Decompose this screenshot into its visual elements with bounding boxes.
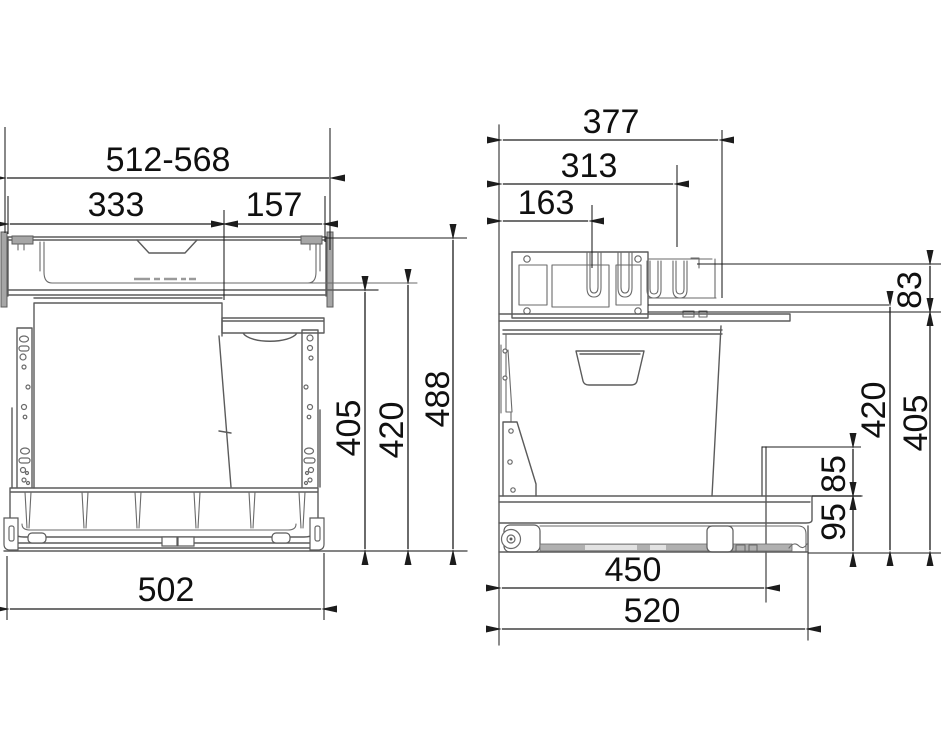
dim-side-rear-step-height: 85 <box>815 449 853 494</box>
front-structure <box>1 232 467 551</box>
right-mounting-rail <box>302 330 320 487</box>
left-mounting-rail <box>17 328 32 487</box>
dim-label-side-163: 163 <box>518 184 575 222</box>
dim-label-front-width-range: 512-568 <box>106 141 231 179</box>
right-mount-hook <box>301 236 322 244</box>
bin-grip-pocket <box>576 351 644 385</box>
dim-label-side-377: 377 <box>583 103 640 141</box>
dim-side-base-height: 95 <box>815 498 853 551</box>
large-bin <box>12 298 231 488</box>
side-view: 377 313 163 83 420 405 85 <box>499 103 941 645</box>
dim-front-bin-height: 405 <box>330 292 368 549</box>
bin-side <box>501 326 722 496</box>
dim-label-side-420: 420 <box>855 382 893 439</box>
dim-label-side-520: 520 <box>624 592 681 630</box>
left-mount-hook <box>12 236 33 244</box>
dim-side-rail-height: 83 <box>891 266 930 310</box>
dim-front-small-compartment: 157 <box>227 186 325 242</box>
slide-latch <box>162 537 177 546</box>
top-rail-bracket <box>512 252 716 318</box>
left-wall-panel <box>1 232 7 307</box>
dim-label-side-85: 85 <box>815 455 853 493</box>
side-base-platform <box>499 496 862 523</box>
dim-label-front-large-width: 333 <box>88 186 145 224</box>
compartment-dividers <box>25 492 305 528</box>
dim-label-side-405: 405 <box>897 395 935 452</box>
front-view: 512-568 333 157 405 420 488 502 <box>1 127 467 620</box>
dim-front-frame-height: 420 <box>373 285 411 549</box>
dim-label-front-420: 420 <box>373 402 411 459</box>
dim-label-front-base-width: 502 <box>138 571 195 609</box>
dim-front-total-height: 488 <box>326 238 467 549</box>
dim-label-front-405: 405 <box>330 400 368 457</box>
rear-step <box>762 447 766 602</box>
dim-side-bin-height: 405 <box>897 314 935 550</box>
handle-recess <box>137 240 197 253</box>
dim-side-slide-depth: 450 <box>502 551 764 589</box>
dim-label-side-313: 313 <box>561 147 618 185</box>
dim-label-front-small-width: 157 <box>246 186 303 224</box>
dim-label-side-95: 95 <box>815 503 853 541</box>
dim-side-base-depth: 520 <box>502 592 805 630</box>
technical-drawing: 512-568 333 157 405 420 488 502 <box>0 0 944 755</box>
dim-side-frame-height: 420 <box>855 307 893 550</box>
dim-label-side-83: 83 <box>891 271 929 309</box>
front-bracket <box>503 422 536 496</box>
dim-side-front-depth: 163 <box>503 184 592 268</box>
technical-drawing-page: 512-568 333 157 405 420 488 502 <box>0 0 944 755</box>
dim-front-base-width: 502 <box>7 553 324 620</box>
base-tray <box>4 488 324 550</box>
front-top-frame <box>8 237 378 296</box>
dim-label-front-488: 488 <box>419 371 457 428</box>
dim-label-side-450: 450 <box>605 551 662 589</box>
